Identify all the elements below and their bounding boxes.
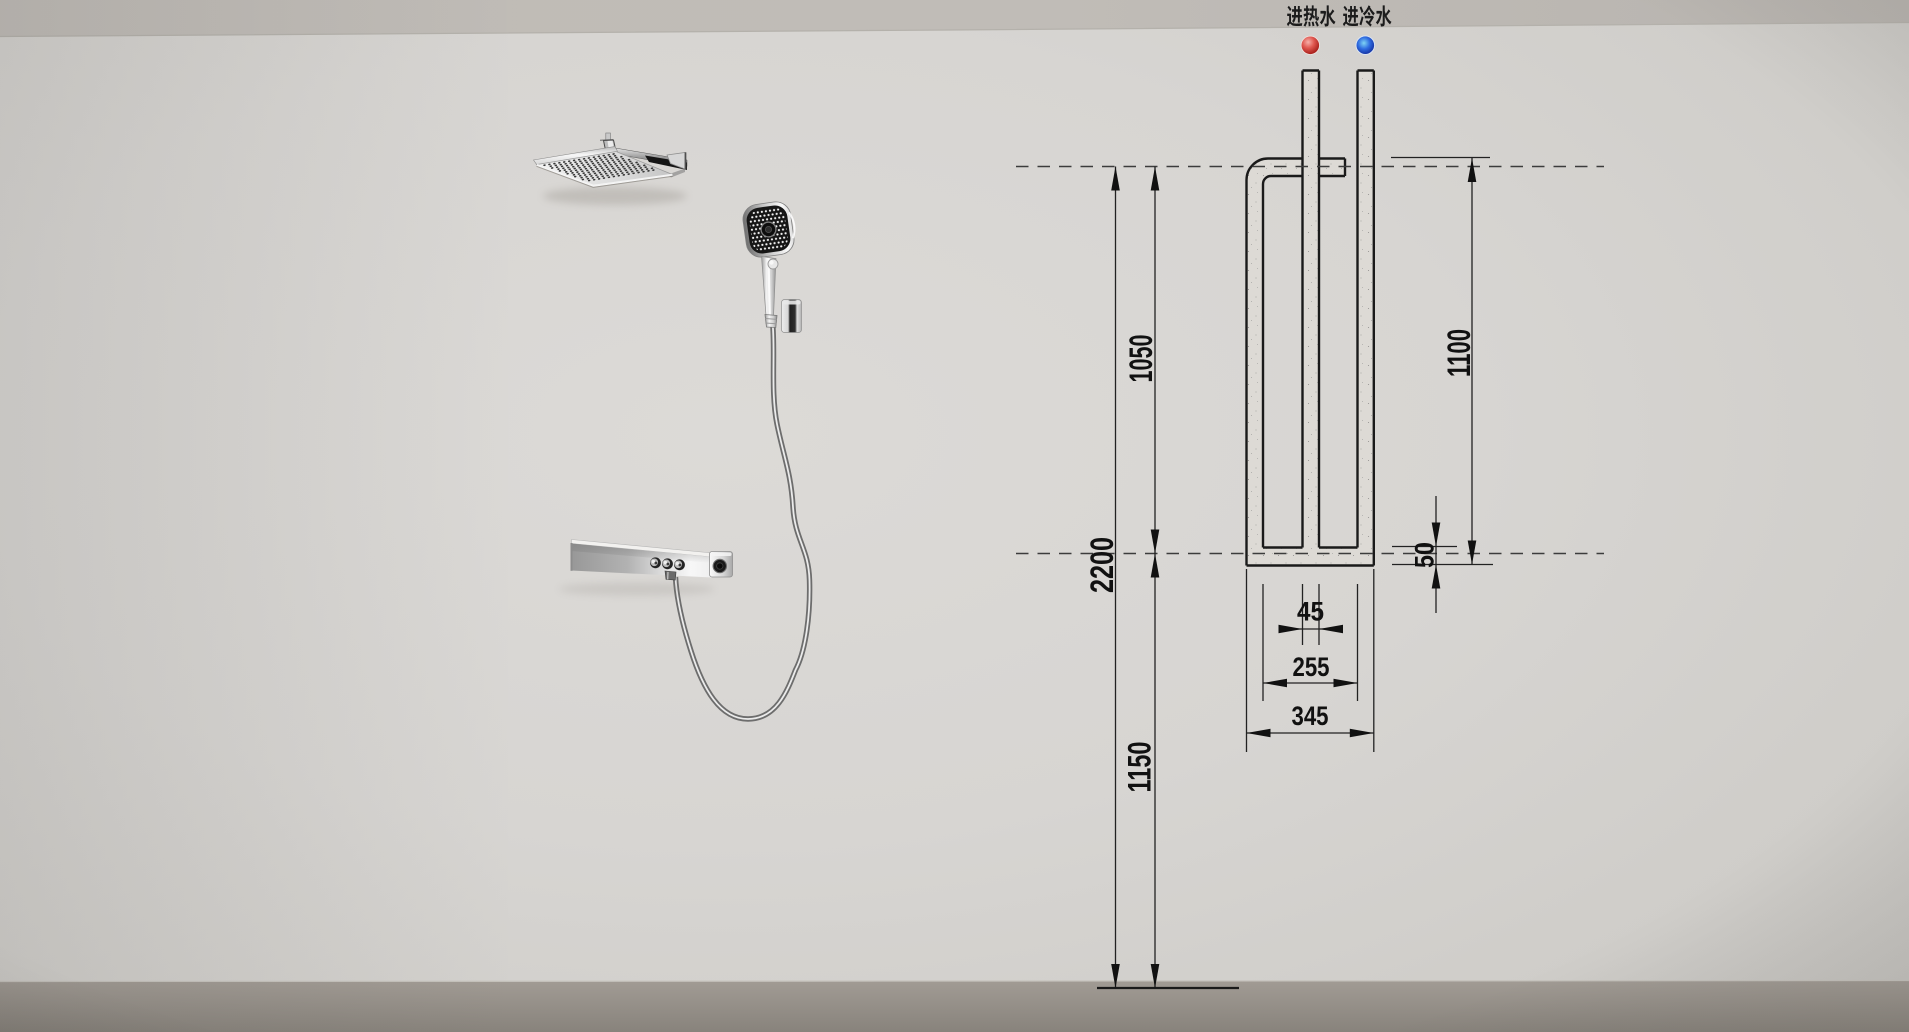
- svg-text:1150: 1150: [1122, 742, 1158, 793]
- svg-text:1050: 1050: [1123, 335, 1159, 383]
- svg-text:2200: 2200: [1084, 537, 1120, 593]
- svg-text:45: 45: [1297, 597, 1324, 627]
- svg-text:50: 50: [1410, 542, 1440, 568]
- svg-text:345: 345: [1292, 701, 1329, 731]
- svg-text:1100: 1100: [1441, 329, 1477, 377]
- svg-text:255: 255: [1293, 652, 1330, 682]
